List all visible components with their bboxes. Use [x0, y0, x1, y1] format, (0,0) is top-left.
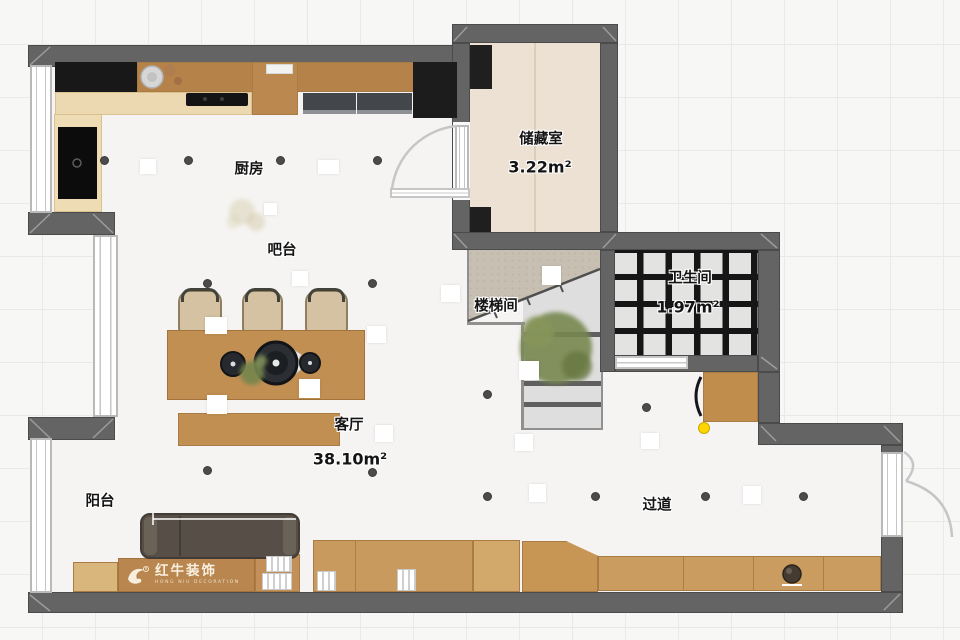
pot-icon: [783, 565, 801, 583]
vent-square: [375, 425, 393, 442]
downlight-dot: [184, 156, 193, 165]
yellow-marker-dot: [698, 422, 710, 434]
downlight-dot: [642, 403, 651, 412]
vent-square: [542, 266, 561, 285]
living-area: 38.10m²: [313, 450, 387, 469]
door-swing-icon: [904, 452, 913, 481]
downlight-dot: [203, 279, 212, 288]
downlight-dot: [701, 492, 710, 501]
vent-square: [515, 434, 533, 451]
floor-plan-canvas: R 红牛装饰 HONG NIU DECORATION: [0, 0, 960, 640]
downlight-dot: [276, 156, 285, 165]
downlight-dot: [203, 466, 212, 475]
downlight-dot: [368, 279, 377, 288]
stairwell-label: 楼梯间: [474, 295, 518, 316]
balcony-label: 阳台: [86, 490, 115, 511]
vent-square: [292, 271, 308, 286]
tableware: [221, 342, 320, 384]
overlay-graphics: [0, 0, 960, 640]
vent-square: [207, 395, 227, 414]
vent-square: [641, 433, 659, 449]
bar-label: 吧台: [268, 239, 297, 260]
vent-square: [529, 484, 546, 502]
downlight-dot: [100, 156, 109, 165]
bathroom-label: 卫生间: [668, 267, 712, 288]
storage-area: 3.22m²: [508, 158, 571, 177]
vent-square: [140, 159, 156, 174]
hallway-label: 过道: [643, 494, 672, 515]
vent-square: [441, 285, 460, 302]
vent-square: [205, 317, 227, 334]
vent-square: [299, 379, 320, 398]
vent-square: [367, 326, 386, 343]
downlight-dot: [368, 468, 377, 477]
bathroom-area: 1.97m²: [656, 298, 719, 317]
wall-corner-bevels: [30, 27, 900, 611]
decor-plant-icon: [226, 199, 265, 231]
storage-label: 储藏室: [519, 128, 563, 149]
downlight-dot: [483, 390, 492, 399]
downlight-dot: [373, 156, 382, 165]
downlight-dot: [799, 492, 808, 501]
appliance-knob-icon: [73, 159, 81, 167]
kitchen-label: 厨房: [235, 158, 264, 179]
downlight-dot: [591, 492, 600, 501]
vent-square: [743, 486, 761, 504]
downlight-dot: [483, 492, 492, 501]
door-swing-icon: [392, 126, 457, 189]
door-swing-icon: [906, 481, 952, 537]
vent-square: [318, 160, 339, 174]
vent-square: [264, 203, 277, 215]
chair-icon: [696, 377, 701, 416]
living-label: 客厅: [335, 414, 364, 435]
vent-square: [519, 361, 539, 380]
